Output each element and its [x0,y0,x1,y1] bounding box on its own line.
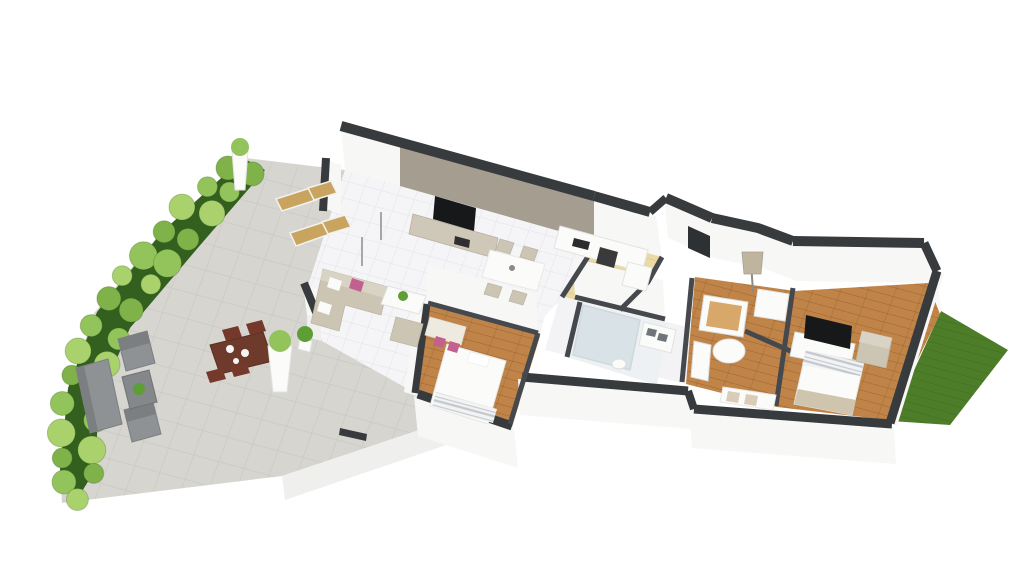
bassinet [713,339,745,363]
hedge-bush [52,448,72,468]
hedge-bush [78,436,106,464]
hedge-bush [66,488,88,510]
toilet [612,359,626,369]
hedge-bush [112,266,132,286]
hedge-bush [65,338,91,364]
hedge-bush [153,249,181,277]
wall-cap-master-north [793,241,924,243]
plate [233,358,239,364]
hedge-bush [169,194,195,220]
outdoor-table-plant [133,383,145,395]
hedge-bush [50,391,74,415]
hedge-bush [153,221,175,243]
basket [726,391,740,403]
plate [226,345,234,353]
nursery-dresser [754,289,789,321]
hedge-bush [47,419,75,447]
white-vase-planter [232,151,248,190]
hedge-bush [141,274,161,294]
coffee-table-plant [398,291,408,301]
floor-plan-canvas [0,0,1024,567]
hedge-bush [97,287,121,311]
wall-cap-south-jog [688,391,694,409]
planter-topiary [269,330,291,352]
hedge-bush [177,228,199,250]
planter-bush [231,138,249,156]
hedge-bush [119,298,143,322]
floor-plan-render [0,0,1024,567]
crib-mattress [706,301,742,331]
hedge-bush [199,200,225,226]
door-plant [297,326,313,342]
hedge-bush [197,177,217,197]
hedge-bush [84,463,104,483]
hedge-bush [80,315,102,337]
wall-cap-entry-recess [650,198,666,212]
table-decor [509,265,515,271]
floor-lamp-shade [742,252,763,274]
plate [241,349,249,357]
basket [744,394,758,406]
radiator [691,341,711,381]
